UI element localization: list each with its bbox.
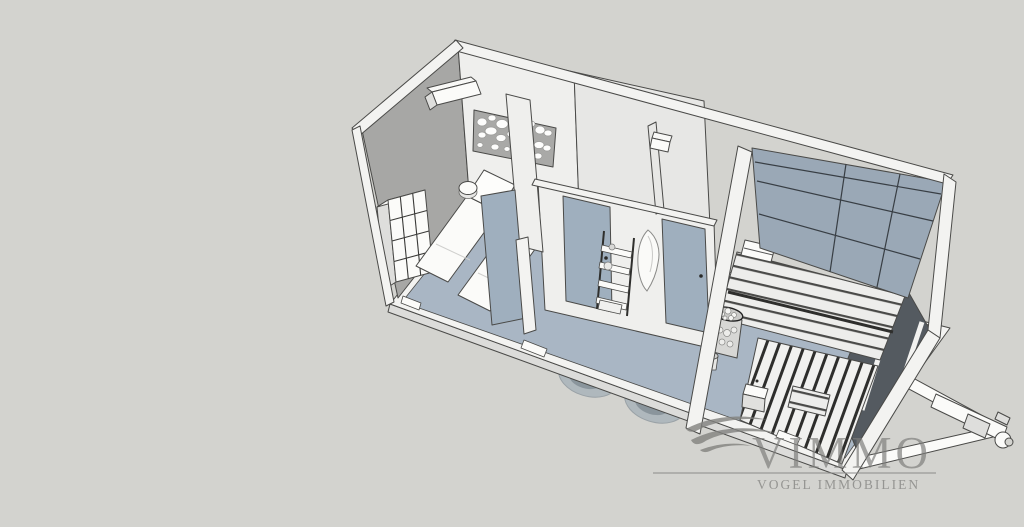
screenshot-canvas: VIMMO VOGEL IMMOBILIEN xyxy=(0,0,1024,527)
brand-name: VIMMO xyxy=(752,428,932,478)
wall-vent-box xyxy=(650,132,672,152)
sauna-trailer-3d-render: VIMMO VOGEL IMMOBILIEN xyxy=(0,0,1024,527)
brand-subtitle: VOGEL IMMOBILIEN xyxy=(757,477,920,492)
corridor-door-left xyxy=(563,196,612,312)
pouf xyxy=(459,182,477,199)
corridor-door-right xyxy=(662,219,709,333)
